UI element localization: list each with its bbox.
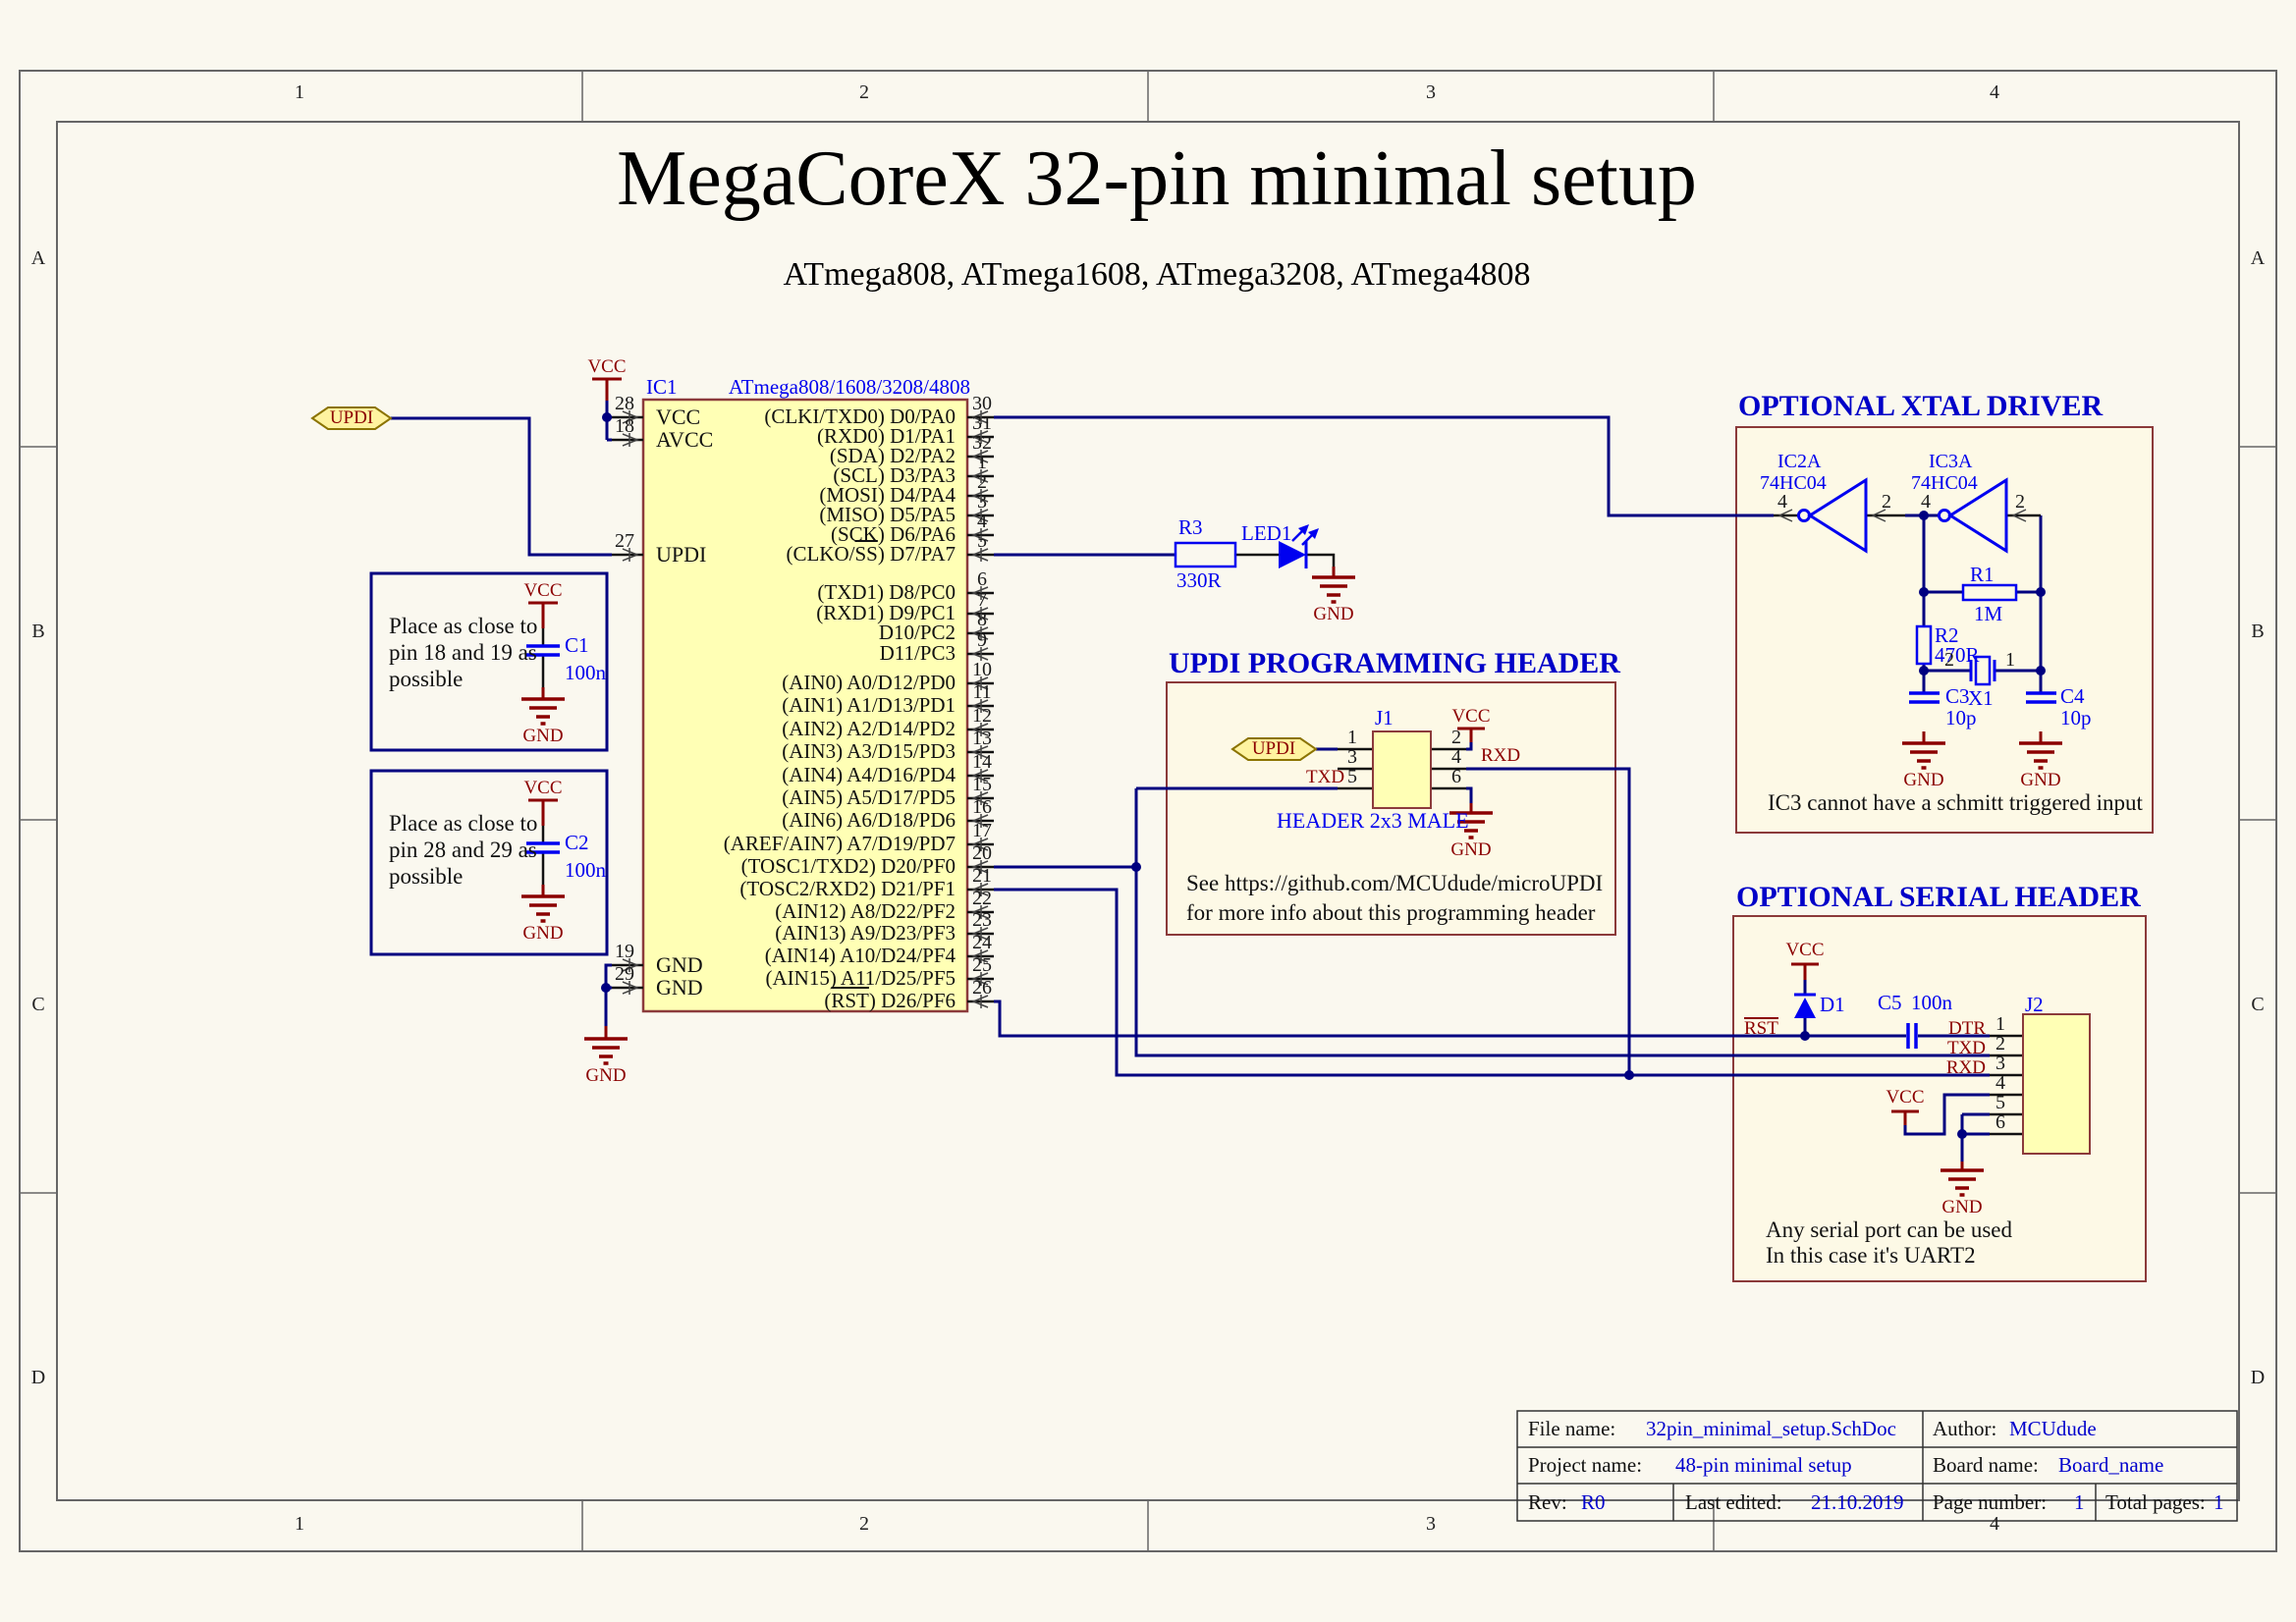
c1-designator: C1 bbox=[565, 634, 589, 656]
ic1-pin-number-18: 18 bbox=[615, 416, 634, 437]
ic1-pin-number-14: 14 bbox=[972, 752, 992, 773]
x1-pin2: 2 bbox=[1944, 650, 1954, 671]
vcc-power-label: VCC bbox=[1785, 941, 1824, 960]
j2-connector-body[interactable] bbox=[2023, 1014, 2090, 1154]
border-row-label-left-D: D bbox=[31, 1368, 45, 1388]
j2-pin-number-3: 3 bbox=[1995, 1054, 2005, 1074]
border-row-label-right-C: C bbox=[2251, 995, 2264, 1015]
border-col-label-bottom-3: 3 bbox=[1426, 1514, 1436, 1535]
c3-value: 10p bbox=[1945, 707, 1977, 729]
gnd-power-label: GND bbox=[1903, 771, 1943, 790]
j2-txd-label: TXD bbox=[1947, 1039, 1986, 1058]
page-title: MegaCoreX 32-pin minimal setup bbox=[617, 137, 1697, 220]
decoupling-note-2-line2: pin 28 and 29 as bbox=[389, 838, 537, 862]
ic1-pin-label-13: (AIN3) A3/D15/PD3 bbox=[782, 740, 956, 762]
r1-value: 1M bbox=[1974, 603, 2002, 624]
ic1-pin-label-12: (AIN2) A2/D14/PD2 bbox=[782, 718, 956, 739]
border-row-label-right-B: B bbox=[2251, 622, 2264, 642]
rst-net-label: RST bbox=[1744, 1017, 1778, 1039]
ic1-pin-number-20: 20 bbox=[972, 843, 992, 864]
ic1-pin-number-6: 6 bbox=[977, 569, 987, 590]
gnd-symbol bbox=[1312, 577, 1355, 602]
rev-value: R0 bbox=[1581, 1491, 1606, 1513]
border-col-label-top-3: 3 bbox=[1426, 82, 1436, 103]
junction-dot bbox=[1919, 666, 1929, 676]
gnd-symbol bbox=[521, 699, 565, 724]
border-col-label-bottom-1: 1 bbox=[295, 1514, 304, 1535]
border-col-label-bottom-2: 2 bbox=[859, 1514, 869, 1535]
gnd-power-label: GND bbox=[585, 1066, 626, 1086]
ic1-pin-label-8: D10/PC2 bbox=[879, 622, 956, 643]
ic2a-part: 74HC04 bbox=[1760, 473, 1827, 494]
ic1-pin-number-7: 7 bbox=[977, 590, 987, 611]
junction-dot bbox=[1957, 1129, 1967, 1139]
gnd-power-label: GND bbox=[522, 924, 563, 944]
d1-designator: D1 bbox=[1820, 994, 1845, 1015]
decoupling-note-2-line3: possible bbox=[389, 865, 463, 889]
ic1-pin-name-27-UPDI: UPDI bbox=[656, 543, 706, 566]
decoupling-note-1-line1: Place as close to bbox=[389, 615, 537, 638]
j1-pin-number-3: 3 bbox=[1347, 747, 1357, 768]
c2-designator: C2 bbox=[565, 832, 589, 853]
j2-pin-number-1: 1 bbox=[1995, 1014, 2005, 1035]
ic1-pin-label-25: (AIN15) A11/D25/PF5 bbox=[766, 967, 956, 989]
j1-pin-number-4: 4 bbox=[1451, 747, 1461, 768]
c4-designator: C4 bbox=[2060, 685, 2085, 707]
page-subtitle: ATmega808, ATmega1608, ATmega3208, ATmeg… bbox=[783, 257, 1530, 293]
c5-value: 100n bbox=[1911, 992, 1952, 1013]
ic1-pin-number-9: 9 bbox=[977, 630, 987, 651]
border-row-label-right-A: A bbox=[2251, 248, 2265, 269]
j1-connector-body[interactable] bbox=[1373, 731, 1431, 808]
ic1-pin-label-20: (TOSC1/TXD2) D20/PF0 bbox=[741, 855, 956, 877]
ic1-pin-number-19: 19 bbox=[615, 942, 634, 962]
decoupling-note-2-line1: Place as close to bbox=[389, 812, 537, 836]
j2-designator: J2 bbox=[2025, 994, 2044, 1015]
c2-value: 100n bbox=[565, 859, 606, 881]
ic1-pin-label-16: (AIN6) A6/D18/PD6 bbox=[782, 809, 956, 831]
gnd-power-label: GND bbox=[1941, 1198, 1982, 1217]
schematic-sheet: MegaCoreX 32-pin minimal setup ATmega808… bbox=[0, 0, 2296, 1622]
x1-pin1: 1 bbox=[2005, 650, 2015, 671]
ic1-pin-number-31: 31 bbox=[972, 413, 992, 434]
decoupling-note-1-line2: pin 18 and 19 as bbox=[389, 641, 537, 665]
j1-pin-number-6: 6 bbox=[1451, 767, 1461, 787]
ic1-pin-name-18-AVCC: AVCC bbox=[656, 428, 713, 451]
ic1-pin-name-19-GND: GND bbox=[656, 953, 703, 976]
ic1-designator: IC1 bbox=[646, 376, 678, 398]
c3-designator: C3 bbox=[1945, 685, 1970, 707]
junction-dot bbox=[602, 412, 612, 422]
ic1-pin-name-29-GND: GND bbox=[656, 976, 703, 999]
resistor-r3[interactable] bbox=[1175, 543, 1235, 567]
board-name-label: Board name: bbox=[1933, 1454, 2039, 1476]
border-row-label-left-A: A bbox=[31, 248, 45, 269]
ic2a-input-pin: 2 bbox=[1882, 492, 1891, 513]
ic1-pin-number-16: 16 bbox=[972, 797, 992, 818]
ic1-pin-name-28-VCC: VCC bbox=[656, 405, 700, 428]
j1-pin-number-1: 1 bbox=[1347, 728, 1357, 748]
c4-value: 10p bbox=[2060, 707, 2092, 729]
ic1-pin-label-15: (AIN5) A5/D17/PD5 bbox=[782, 786, 956, 808]
led1-designator: LED1 bbox=[1241, 522, 1291, 544]
gnd-power-label: GND bbox=[1450, 840, 1491, 860]
j1-pin-number-5: 5 bbox=[1347, 767, 1357, 787]
border-row-label-left-B: B bbox=[31, 622, 44, 642]
j2-pin-number-4: 4 bbox=[1995, 1073, 2005, 1094]
ic1-pin-number-21: 21 bbox=[972, 866, 992, 887]
junction-dot bbox=[2036, 666, 2046, 676]
updi-port-label: UPDI bbox=[330, 408, 373, 428]
ic1-pin-number-30: 30 bbox=[972, 394, 992, 414]
total-pages-value: 1 bbox=[2214, 1491, 2224, 1513]
j1-txd-label: TXD bbox=[1306, 768, 1344, 787]
vcc-power-label: VCC bbox=[1451, 707, 1490, 727]
ic1-pin-label-24: (AIN14) A10/D24/PF4 bbox=[765, 945, 956, 966]
author-value: MCUdude bbox=[2009, 1418, 2097, 1439]
ic1-pin-number-12: 12 bbox=[972, 706, 992, 727]
xtal-note: IC3 cannot have a schmitt triggered inpu… bbox=[1768, 791, 2143, 815]
ic1-pin-number-3: 3 bbox=[977, 492, 987, 513]
junction-dot bbox=[1624, 1070, 1634, 1080]
r3-designator: R3 bbox=[1178, 516, 1203, 538]
decoupling-note-1-line3: possible bbox=[389, 668, 463, 691]
j2-rxd-label: RXD bbox=[1946, 1058, 1986, 1078]
gnd-power-label: GND bbox=[522, 727, 563, 746]
c1-value: 100n bbox=[565, 662, 606, 683]
page-number-label: Page number: bbox=[1933, 1491, 2047, 1513]
j2-dtr-label: DTR bbox=[1948, 1019, 1986, 1039]
updi-header-note2: for more info about this programming hea… bbox=[1186, 901, 1595, 925]
ic1-pin-number-32: 32 bbox=[972, 433, 992, 454]
r1-designator: R1 bbox=[1970, 564, 1995, 585]
ic1-pin-number-22: 22 bbox=[972, 889, 992, 909]
ic1-pin-number-5: 5 bbox=[977, 531, 987, 552]
border-row-label-left-C: C bbox=[31, 995, 44, 1015]
last-edited-label: Last edited: bbox=[1685, 1491, 1782, 1513]
junction-dot bbox=[601, 983, 611, 993]
border-row-label-right-D: D bbox=[2251, 1368, 2265, 1388]
author-label: Author: bbox=[1933, 1418, 1996, 1439]
ic3a-designator: IC3A bbox=[1929, 452, 1972, 472]
c5-designator: C5 bbox=[1878, 992, 1902, 1013]
j1-type-label: HEADER 2x3 MALE bbox=[1277, 809, 1469, 832]
vcc-power-label: VCC bbox=[1886, 1088, 1924, 1108]
r3-value: 330R bbox=[1176, 569, 1222, 591]
ic1-pin-number-27: 27 bbox=[615, 531, 634, 552]
ic1-pin-label-6: (TXD1) D8/PC0 bbox=[817, 581, 956, 603]
ic1-pin-label-21: (TOSC2/RXD2) D21/PF1 bbox=[739, 878, 956, 899]
board-name-value: Board_name bbox=[2058, 1454, 2163, 1476]
ic1-pin-number-10: 10 bbox=[972, 660, 992, 680]
vcc-power-label: VCC bbox=[587, 357, 626, 377]
gnd-symbol bbox=[584, 1039, 628, 1063]
vcc-power-label: VCC bbox=[523, 581, 562, 601]
junction-dot bbox=[2036, 587, 2046, 597]
ic1-pin-label-5: (CLKO/SS) D7/PA7 bbox=[786, 543, 956, 565]
j2-pin-number-5: 5 bbox=[1995, 1093, 2005, 1113]
j2-pin-number-2: 2 bbox=[1995, 1034, 2005, 1054]
ic1-pin-number-17: 17 bbox=[972, 821, 992, 841]
j2-pin-number-6: 6 bbox=[1995, 1112, 2005, 1133]
ic2a-designator: IC2A bbox=[1777, 452, 1821, 472]
updi-header-title: UPDI PROGRAMMING HEADER bbox=[1169, 648, 1620, 679]
r2-value: 470R bbox=[1935, 644, 1980, 666]
ic1-pin-number-15: 15 bbox=[972, 775, 992, 795]
ic1-pin-number-2: 2 bbox=[977, 472, 987, 493]
ic1-pin-number-11: 11 bbox=[972, 682, 991, 703]
ic1-pin-label-9: D11/PC3 bbox=[880, 642, 956, 664]
total-pages-label: Total pages: bbox=[2105, 1491, 2206, 1513]
updi-port-header-label: UPDI bbox=[1252, 739, 1295, 759]
serial-title: OPTIONAL SERIAL HEADER bbox=[1736, 882, 2141, 913]
ic1-pin-number-29: 29 bbox=[615, 964, 634, 985]
junction-dot bbox=[1131, 862, 1141, 872]
vcc-power-label: VCC bbox=[523, 779, 562, 798]
updi-header-note1: See https://github.com/MCUdude/microUPDI bbox=[1186, 872, 1603, 895]
ic1-pin-number-28: 28 bbox=[615, 394, 634, 414]
border-col-label-bottom-4: 4 bbox=[1990, 1514, 1999, 1535]
ic1-pin-number-26: 26 bbox=[972, 978, 992, 999]
ic1-pin-number-25: 25 bbox=[972, 955, 992, 976]
j1-pin-number-2: 2 bbox=[1451, 728, 1461, 748]
border-col-label-top-2: 2 bbox=[859, 82, 869, 103]
j1-rxd-label: RXD bbox=[1481, 746, 1520, 766]
serial-note2: In this case it's UART2 bbox=[1766, 1244, 1976, 1268]
ic3a-input-pin: 2 bbox=[2015, 492, 2025, 513]
ic1-pin-number-13: 13 bbox=[972, 729, 992, 749]
ic1-pin-number-23: 23 bbox=[972, 910, 992, 931]
ic1-pin-label-11: (AIN1) A1/D13/PD1 bbox=[782, 694, 956, 716]
j1-designator: J1 bbox=[1375, 707, 1394, 729]
ic1-pin-number-4: 4 bbox=[977, 512, 987, 532]
ic1-pin-number-8: 8 bbox=[977, 610, 987, 630]
junction-dot bbox=[1800, 1031, 1810, 1041]
ic2a-output-pin: 4 bbox=[1777, 492, 1787, 513]
border-col-label-top-1: 1 bbox=[295, 82, 304, 103]
ic1-pin-number-24: 24 bbox=[972, 933, 992, 953]
ic1-pin-label-26: (RST) D26/PF6 bbox=[824, 990, 956, 1011]
ic1-pin-label-17: (AREF/AIN7) A7/D19/PD7 bbox=[724, 833, 956, 854]
page-number-value: 1 bbox=[2074, 1491, 2085, 1513]
gnd-power-label: GND bbox=[2020, 771, 2060, 790]
xtal-title: OPTIONAL XTAL DRIVER bbox=[1738, 391, 2103, 422]
junction-dot bbox=[1919, 587, 1929, 597]
file-name-value: 32pin_minimal_setup.SchDoc bbox=[1646, 1418, 1896, 1439]
ic1-pin-label-22: (AIN12) A8/D22/PF2 bbox=[775, 900, 956, 922]
ic1-part-name: ATmega808/1608/3208/4808 bbox=[729, 376, 970, 398]
serial-note1: Any serial port can be used bbox=[1766, 1218, 2012, 1242]
project-name-label: Project name: bbox=[1528, 1454, 1642, 1476]
last-edited-value: 21.10.2019 bbox=[1811, 1491, 1904, 1513]
gnd-power-label: GND bbox=[1313, 605, 1353, 624]
rev-label: Rev: bbox=[1528, 1491, 1567, 1513]
ic1-pin-label-10: (AIN0) A0/D12/PD0 bbox=[782, 672, 956, 693]
border-col-label-top-4: 4 bbox=[1990, 82, 1999, 103]
file-name-label: File name: bbox=[1528, 1418, 1615, 1439]
project-name-value: 48-pin minimal setup bbox=[1675, 1454, 1852, 1476]
gnd-symbol bbox=[521, 896, 565, 921]
ic3a-output-pin: 4 bbox=[1921, 492, 1931, 513]
ic1-pin-label-23: (AIN13) A9/D23/PF3 bbox=[775, 922, 956, 944]
ic1-pin-label-14: (AIN4) A4/D16/PD4 bbox=[782, 764, 956, 785]
ic1-pin-number-1: 1 bbox=[977, 453, 987, 473]
